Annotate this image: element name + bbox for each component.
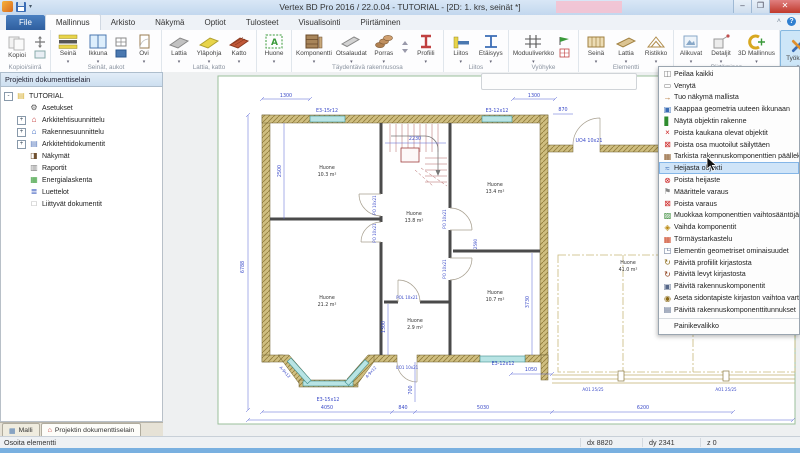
svg-text:1300: 1300 [280,93,292,99]
svg-text:AO1 25/25: AO1 25/25 [715,387,737,392]
dropdown-arrow-icon[interactable] [97,57,100,62]
dropdown-arrow-icon[interactable] [238,57,241,62]
dropdown-arrow-icon[interactable] [425,57,428,62]
status-prompt: Osoita elementti [4,438,56,447]
title-bar: ▾ Vertex BD Pro 2016 / 22.0.04 - TUTORIA… [0,0,800,16]
komponentti-button[interactable]: Komponentti [294,33,334,62]
seina-button[interactable]: Seinä [53,33,83,62]
menu-item-label: Muokkaa komponenttien vaihtosääntöjä [674,211,799,219]
svg-text:1050: 1050 [525,367,537,373]
ceiling-icon [198,33,220,50]
dropdown-arrow-icon[interactable] [383,57,386,62]
menu-item-icon: → [661,92,674,103]
panel-tab-label: Malli [19,427,33,434]
detaljit-button[interactable]: Detaljit [706,33,736,62]
menu-item-label: Päivitä profiilit kirjastosta [674,259,752,267]
menu-tab[interactable]: File [6,15,45,30]
floor-icon [168,33,190,50]
truss-icon [645,33,667,50]
svg-text:Huone: Huone [407,318,423,324]
menu-item-icon: ▣ [661,104,674,115]
copy-group-icon[interactable] [34,50,46,59]
menu-item[interactable]: ◫ Peilaa kaikki [659,68,799,80]
elementti-lattia-button[interactable]: Lattia [611,33,641,62]
dropdown-arrow-icon[interactable] [755,57,758,62]
tree-item-icon: ▤ [16,91,26,101]
menu-item[interactable]: → Tuo näkymä mallista [659,92,799,104]
group-label: Täydentävä rakennusosa [294,63,441,72]
menu-item[interactable]: ◈ Vaihda komponentit [659,221,799,233]
menu-tab[interactable]: Piirtäminen [351,15,411,30]
recording-highlight [556,1,622,13]
tree-item[interactable]: + ▤ Arkkitehtidokumentit [1,138,162,150]
menu-item-icon: ⚑ [661,186,674,197]
tree-item-label: Raportit [42,165,67,172]
tyokalut-button[interactable]: Työkalut [783,37,800,67]
svg-text:6788: 6788 [240,261,246,273]
canvas-toolbar [481,73,637,90]
tree-expander[interactable]: + [17,140,26,149]
svg-text:840: 840 [398,405,407,411]
stairs-icon [372,33,396,50]
panel-bottom-tabs: ▦ Malli ⌂ Projektin dokumenttiselain [0,422,163,437]
menu-item-icon: ▤ [661,304,674,315]
menu-item-label: Päivitä rakennuskomponentit [674,282,765,290]
3d-modeling-icon [745,33,767,50]
tree-item-icon: ▦ [29,175,39,185]
tree-item-icon: ▤ [29,139,39,149]
menu-item-label: Painikevalikko [674,322,719,330]
menu-tab[interactable]: Näkymä [145,15,194,30]
zone-grid-icon[interactable] [558,48,574,58]
svg-text:6200: 6200 [637,405,649,411]
panel-header: Projektin dokumenttiselain [0,72,163,87]
etaisyys-button[interactable]: Etäisyys [476,33,506,62]
status-dx: dx 8820 [580,438,645,447]
window-bottom-border [0,448,800,453]
svg-text:2590: 2590 [473,238,478,249]
menu-item-label: Päivitä levyt kirjastosta [674,270,746,278]
menu-item-icon: ◈ [661,222,674,233]
menu-item[interactable]: ▋ Näytä objektin rakenne [659,115,799,127]
dropdown-arrow-icon[interactable] [67,57,70,62]
mouse-cursor [706,156,718,177]
close-button[interactable]: ✕ [769,0,800,13]
ribbon-group-floor: Lattia Yläpohja Katto Lattia, katto [162,30,257,72]
menu-item[interactable]: ◳ Elementin geometriset ominaisuudet [659,245,799,257]
menu-item-icon: ≈ [661,163,674,174]
tree-item[interactable]: ≣ Luettelot [1,186,162,198]
component-icon [302,33,326,50]
grid-icon [522,33,544,50]
dropdown-arrow-icon[interactable] [490,57,493,62]
svg-text:PO 10x21: PO 10x21 [442,259,447,279]
room-icon: A [263,33,285,50]
menu-tab[interactable]: Tulosteet [236,15,289,30]
svg-text:Huone: Huone [487,290,503,296]
dropdown-arrow-icon[interactable] [178,57,181,62]
svg-text:Huone: Huone [319,165,335,171]
panel-tab-icon: ⌂ [48,427,52,434]
profile-icon [416,33,436,50]
menu-item-label: Poista osa muotoilut säilyttäen [674,141,770,149]
zone-flag-icon[interactable] [558,36,574,46]
menu-item[interactable]: ▨ Muokkaa komponenttien vaihtosääntöjä [659,210,799,222]
tree-expander[interactable]: - [4,92,13,101]
svg-text:41.0 m²: 41.0 m² [619,267,638,273]
help-icon[interactable]: ? [787,17,796,26]
svg-text:2230: 2230 [409,136,421,142]
tree-item-label: Rakennesuunnittelu [42,129,104,136]
svg-text:13.8 m²: 13.8 m² [405,218,424,224]
dropdown-arrow-icon[interactable] [625,57,628,62]
menu-item-icon: ⊗ [661,175,674,186]
copy-icon [6,35,28,52]
document-tree: - ▤ TUTORIAL ⚙ Asetukset + ⌂ Arkkitehtis… [0,87,163,422]
svg-text:E3-15r12: E3-15r12 [316,108,338,114]
menu-item[interactable]: ▣ Kaappaa geometria uuteen ikkunaan [659,103,799,115]
svg-text:700: 700 [408,385,414,394]
menu-item-label: Kaappaa geometria uuteen ikkunaan [674,105,790,113]
tree-item-icon: ⌂ [29,127,39,137]
svg-text:2.9 m²: 2.9 m² [407,325,423,331]
status-dy: dy 2341 [642,438,703,447]
svg-text:Huone: Huone [620,260,636,266]
ribbon-group-components: Komponentti Otsalaudat Porras Profiili T… [292,30,444,72]
ovi-button[interactable]: Ovi [129,33,159,62]
window-title: Vertex BD Pro 2016 / 22.0.04 - TUTORIAL … [0,2,800,12]
dropdown-arrow-icon[interactable] [690,57,693,62]
tree-item-icon: ◨ [29,151,39,161]
tree-item-label: Arkkitehtisuunnittelu [42,117,105,124]
menu-item-label: Poista heijaste [674,176,720,184]
menu-item-label: Aseta sidontapiste kirjaston vaihtoa var… [674,294,799,302]
panel-tab-label: Projektin dokumenttiselain [55,427,134,434]
mallinnus3d-button[interactable]: 3D Mallinnus [736,33,777,62]
ribbon-group-joint: Liitos Etäisyys Liitos [444,30,509,72]
svg-text:Huone: Huone [487,182,503,188]
tree-item-label: TUTORIAL [29,93,64,100]
ylapohja-button[interactable]: Yläpohja [194,33,224,62]
tree-item-icon: □ [29,199,39,209]
svg-text:13.4 m²: 13.4 m² [486,189,505,195]
menu-item-icon: ▭ [661,80,674,91]
menu-item-icon: ▦ [661,234,674,245]
menu-item[interactable]: ⊗ Poista heijaste [659,174,799,186]
svg-text:21.2 m²: 21.2 m² [318,302,337,308]
dropdown-arrow-icon[interactable] [208,57,211,62]
tree-item-label: Arkkitehtidokumentit [42,141,105,148]
panel-tab[interactable]: ⌂ Projektin dokumenttiselain [41,423,142,437]
tools-icon [786,37,800,55]
joint-icon [450,33,472,50]
svg-text:2500: 2500 [277,165,283,177]
panel-tab[interactable]: ▦ Malli [2,423,40,437]
menu-item-label: Päivitä rakennuskomponenttitunnukset [674,306,796,314]
menu-item[interactable]: ↻ Päivitä levyt kirjastosta [659,269,799,281]
group-label: Lattia, katto [164,63,254,72]
tree-item-icon: ≣ [29,187,39,197]
tree-item[interactable]: □ Liittyvät dokumentit [1,198,162,210]
tree-item-icon: ▥ [29,163,39,173]
menu-item[interactable]: ↻ Päivitä profiilit kirjastosta [659,257,799,269]
menu-tab[interactable]: Visualisointi [288,15,350,30]
svg-text:E3-12x12: E3-12x12 [492,361,515,367]
dropdown-arrow-icon[interactable] [313,57,316,62]
menu-item-label: Elementin geometriset ominaisuudet [674,247,789,255]
minimize-button[interactable]: – [733,0,751,13]
menu-item-icon: ⊠ [661,198,674,209]
svg-text:PO 10x21: PO 10x21 [372,195,377,215]
group-label: Vyöhyke [511,63,576,72]
opening-grid-icon[interactable] [115,37,127,47]
status-bar: Osoita elementti dx 8820 dy 2341 z 0 [0,436,800,448]
ribbon-group-walls: Seinä Ikkuna Ovi Seinät, aukot [51,30,162,72]
ristikko-button[interactable]: Ristikko [641,33,671,62]
menu-item-icon: ⊠ [661,139,674,150]
tree-item-icon: ⌂ [29,115,39,125]
tree-item[interactable]: - ▤ TUTORIAL [1,90,162,102]
ribbon-group-copy: Kopioi Kopioi/siirrä [0,30,51,72]
detail-icon [710,33,732,50]
ribbon-group-zone: Moduuliverkko Vyöhyke [509,30,579,72]
dropdown-arrow-icon[interactable] [720,57,723,62]
dropdown-arrow-icon[interactable] [595,57,598,62]
menu-item-label: Tarkista rakennuskomponenttien päällekkä… [674,152,799,160]
group-label [259,63,289,72]
huone-button[interactable]: A Huone [259,33,289,62]
svg-text:870: 870 [558,107,567,113]
menu-item[interactable]: ⊠ Poista osa muotoilut säilyttäen [659,139,799,151]
menu-item[interactable]: ▣ Päivitä rakennuskomponentit [659,280,799,292]
distance-icon [480,33,502,50]
svg-text:1300: 1300 [381,321,387,333]
tree-item-icon: ⚙ [29,103,39,113]
menu-item-label: Poista varaus [674,200,717,208]
menu-item[interactable]: ▦ Tarkista rakennuskomponenttien päällek… [659,151,799,163]
panel-tab-icon: ▦ [9,427,16,435]
svg-text:E3-15x12: E3-15x12 [317,397,340,403]
svg-text:3730: 3730 [525,296,531,308]
menu-tab[interactable]: Optiot [194,15,235,30]
tree-item-label: Asetukset [42,105,73,112]
dropdown-arrow-icon[interactable] [532,57,535,62]
menu-item[interactable]: ▦ Törmäystarkastelu [659,233,799,245]
maximize-button[interactable]: ❐ [751,0,769,13]
group-label: Liitos [446,63,506,72]
tree-item[interactable]: ▥ Raportit [1,162,162,174]
svg-text:A: A [271,38,278,48]
svg-text:5030: 5030 [477,405,489,411]
profiili-button[interactable]: Profiili [411,33,441,62]
menu-item-label: Törmäystarkastelu [674,235,732,243]
dropdown-arrow-icon[interactable] [273,57,276,62]
tree-item[interactable]: ◨ Näkymät [1,150,162,162]
project-browser-panel: Projektin dokumenttiselain - ▤ TUTORIAL … [0,72,164,437]
wall-icon [57,33,79,50]
dropdown-arrow-icon[interactable] [143,57,146,62]
svg-text:POL 10x21: POL 10x21 [396,295,418,300]
otsalaudat-button[interactable]: Otsalaudat [334,33,369,62]
svg-text:AO1 25/25: AO1 25/25 [582,387,604,392]
menu-item-label: Määrittele varaus [674,188,728,196]
svg-text:1300: 1300 [528,93,540,99]
menu-item[interactable]: ≈ Heijasta objekti [659,162,799,174]
svg-text:E3-12x12: E3-12x12 [486,108,509,114]
moduuliverkko-button[interactable]: Moduuliverkko [511,33,556,62]
group-label: Seinät, aukot [53,63,159,72]
tree-expander[interactable]: + [17,128,26,137]
menu-item[interactable]: ⊠ Poista varaus [659,198,799,210]
menu-item-label: Tuo näkymä mallista [674,93,739,101]
menu-item-icon: ◫ [661,68,674,79]
svg-text:PO 10x21: PO 10x21 [442,209,447,229]
menu-item[interactable]: ▤ Päivitä rakennuskomponenttitunnukset [659,304,799,316]
tree-item[interactable]: ⚙ Asetukset [1,102,162,114]
elementti-seina-button[interactable]: Seinä [581,33,611,62]
group-label: Kopioi/siirrä [2,63,48,72]
alikuvat-button[interactable]: Alikuvat [676,33,706,62]
tree-item-label: Näkymät [42,153,70,160]
porras-button[interactable]: Porras [369,33,399,62]
status-z: z 0 [700,438,747,447]
menu-item-icon: ↻ [661,269,674,280]
svg-text:PO 10x21: PO 10x21 [372,223,377,243]
menu-item-icon: ◉ [661,293,674,304]
tyokalut-dropdown-menu: ◫ Peilaa kaikki ▭ Venytä → Tuo näkymä ma… [658,66,800,335]
lattia-button[interactable]: Lattia [164,33,194,62]
svg-text:Huone: Huone [319,295,335,301]
menu-item-icon: ↻ [661,257,674,268]
svg-text:Huone: Huone [406,211,422,217]
tree-item-label: Liittyvät dokumentit [42,201,102,208]
dropdown-arrow-icon[interactable] [655,57,658,62]
katto-button[interactable]: Katto [224,33,254,62]
tree-expander[interactable]: + [17,116,26,125]
menu-item[interactable]: ◉ Aseta sidontapiste kirjaston vaihtoa v… [659,292,799,304]
tree-item-label: Luettelot [42,189,69,196]
fascia-icon [339,33,363,50]
svg-text:UO4 10x21: UO4 10x21 [576,138,603,144]
collapse-ribbon-icon[interactable]: ˄ [777,18,781,25]
menu-item[interactable]: × Poista kaukana olevat objektit [659,127,799,139]
tree-item[interactable]: ▦ Energialaskenta [1,174,162,186]
menu-item-label: Näytä objektin rakenne [674,117,747,125]
menu-item-label: Peilaa kaikki [674,70,713,78]
menu-tab[interactable]: Mallinnus [45,14,101,30]
tree-item[interactable]: + ⌂ Rakennesuunnittelu [1,126,162,138]
menu-item-icon: ◳ [661,245,674,256]
svg-text:10.7 m²: 10.7 m² [486,297,505,303]
tree-item-label: Energialaskenta [42,177,92,184]
group-scroll-arrows[interactable] [399,40,411,54]
move-icon[interactable] [34,36,46,48]
dropdown-arrow-icon[interactable] [350,57,353,62]
subpicture-icon [680,33,702,50]
liitos-button[interactable]: Liitos [446,33,476,62]
dropdown-arrow-icon[interactable] [460,57,463,62]
ribbon-group-room: A Huone [257,30,292,72]
roof-icon [228,33,250,50]
menu-item-icon: ▣ [661,281,674,292]
menu-tab-row: FileMallinnusArkistoNäkymäOptiotTulostee… [0,15,800,31]
menu-item-icon: × [661,127,674,138]
svg-text:4050: 4050 [321,405,333,411]
door-icon [134,33,154,50]
blue-opening-icon[interactable] [115,49,127,58]
menu-item[interactable]: Painikevalikko [659,318,799,333]
menu-item-label: Poista kaukana olevat objektit [674,129,768,137]
window-icon [87,33,109,50]
kopioi-button[interactable]: Kopioi [2,35,32,59]
ikkuna-button[interactable]: Ikkuna [83,33,113,62]
svg-text:UO1 10x21: UO1 10x21 [396,365,419,370]
menu-item-icon: ▨ [661,210,674,221]
menu-tab[interactable]: Arkisto [101,15,145,30]
menu-item-icon: ▦ [661,151,674,162]
menu-item-icon: ▋ [661,116,674,127]
wall-panel-icon [585,33,607,50]
menu-item-label: Vaihda komponentit [674,223,736,231]
menu-item-label: Venytä [674,82,696,90]
floor-panel-icon [615,33,637,50]
tree-item[interactable]: + ⌂ Arkkitehtisuunnittelu [1,114,162,126]
menu-item[interactable]: ⚑ Määrittele varaus [659,186,799,198]
menu-item[interactable]: ▭ Venytä [659,80,799,92]
svg-text:10.3 m²: 10.3 m² [318,172,337,178]
